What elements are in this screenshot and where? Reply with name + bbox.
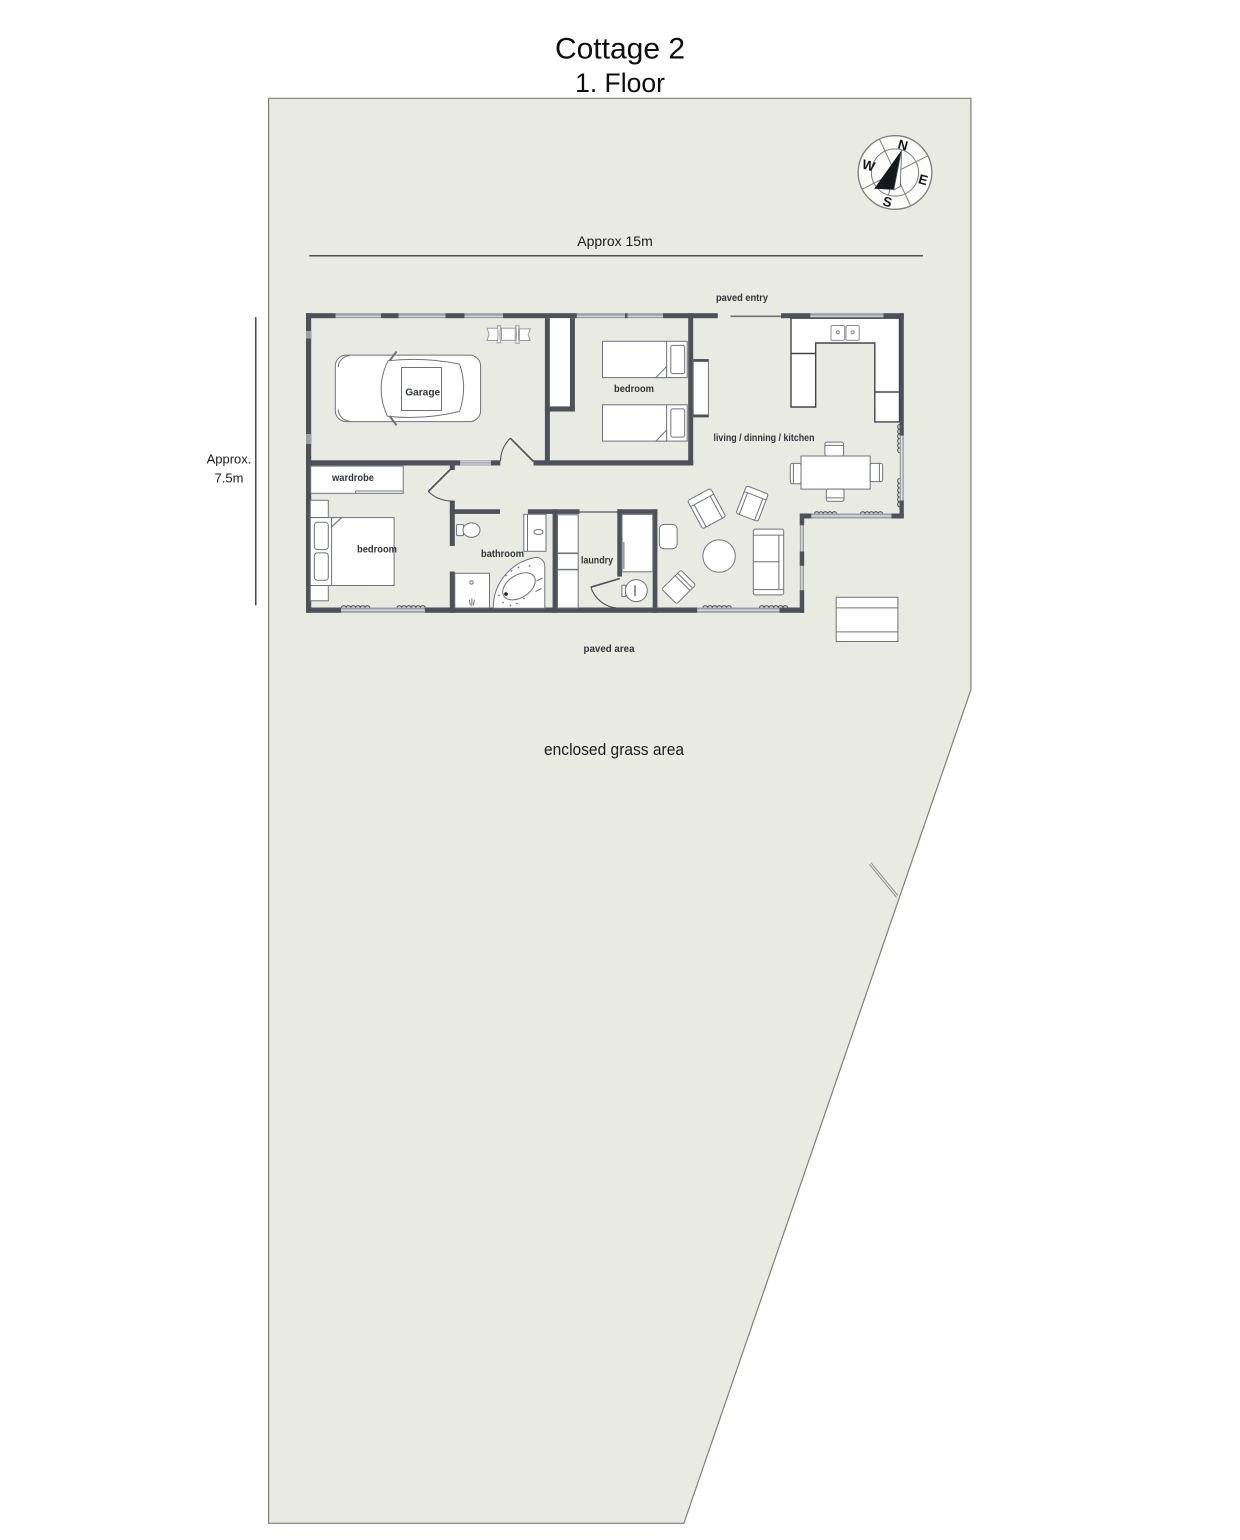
svg-text:bathroom: bathroom <box>481 548 524 560</box>
svg-text:laundry: laundry <box>581 555 613 567</box>
svg-text:1. Floor: 1. Floor <box>575 68 665 98</box>
svg-text:living / dinning / kitchen: living / dinning / kitchen <box>714 432 815 444</box>
svg-text:bedroom: bedroom <box>357 544 397 556</box>
svg-text:Garage: Garage <box>405 386 440 398</box>
svg-text:wardrobe: wardrobe <box>331 472 374 484</box>
svg-text:paved entry: paved entry <box>716 292 768 304</box>
svg-text:paved area: paved area <box>584 643 635 655</box>
svg-text:Approx.: Approx. <box>207 452 252 467</box>
svg-text:enclosed grass area: enclosed grass area <box>544 741 685 759</box>
svg-text:Approx 15m: Approx 15m <box>577 233 652 249</box>
svg-text:bedroom: bedroom <box>614 383 654 395</box>
svg-text:7.5m: 7.5m <box>215 471 244 486</box>
svg-text:Cottage 2: Cottage 2 <box>555 33 685 66</box>
